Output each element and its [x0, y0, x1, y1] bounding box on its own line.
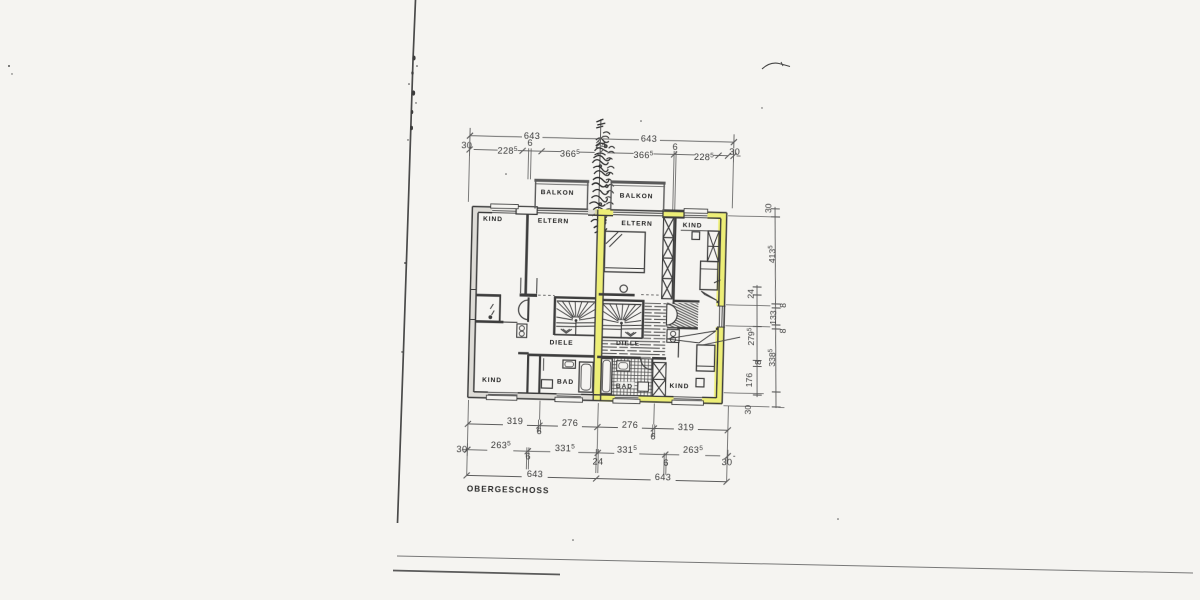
svg-text:BAD: BAD — [557, 378, 574, 385]
svg-text:8: 8 — [753, 360, 763, 365]
svg-text:133: 133 — [768, 310, 778, 325]
svg-text:6: 6 — [650, 431, 656, 441]
svg-text:6: 6 — [536, 426, 542, 436]
svg-text:ELTERN: ELTERN — [538, 218, 569, 226]
svg-text:8: 8 — [778, 328, 788, 333]
svg-text:176: 176 — [744, 373, 754, 388]
svg-text:KIND: KIND — [683, 222, 703, 229]
svg-text:30: 30 — [721, 457, 732, 467]
svg-text:30: 30 — [729, 147, 740, 157]
svg-text:24: 24 — [595, 140, 606, 150]
svg-text:30: 30 — [763, 203, 773, 213]
svg-text:643: 643 — [527, 469, 543, 479]
svg-text:KIND: KIND — [483, 216, 503, 223]
svg-text:30: 30 — [461, 140, 472, 150]
svg-text:BALKON: BALKON — [541, 189, 575, 197]
svg-text:ELTERN: ELTERN — [621, 220, 652, 228]
svg-text:24: 24 — [592, 456, 603, 466]
svg-text:6: 6 — [527, 138, 533, 148]
svg-text:6: 6 — [672, 142, 678, 152]
svg-text:319: 319 — [678, 422, 694, 432]
svg-text:643: 643 — [655, 472, 671, 482]
svg-text:BAD: BAD — [616, 383, 633, 390]
svg-text:319: 319 — [507, 416, 523, 426]
svg-text:30: 30 — [456, 444, 467, 454]
svg-text:24: 24 — [745, 289, 755, 299]
svg-text:DIELE: DIELE — [549, 339, 573, 347]
svg-text:6: 6 — [525, 451, 531, 461]
svg-text:30: 30 — [743, 405, 753, 415]
svg-text:KIND: KIND — [669, 383, 689, 390]
svg-text:BALKON: BALKON — [620, 193, 654, 201]
svg-text:KIND: KIND — [482, 377, 502, 384]
svg-text:8: 8 — [778, 303, 788, 308]
svg-text:643: 643 — [641, 133, 657, 143]
svg-text:276: 276 — [622, 420, 638, 430]
svg-text:6: 6 — [663, 458, 669, 468]
svg-text:276: 276 — [562, 418, 578, 428]
